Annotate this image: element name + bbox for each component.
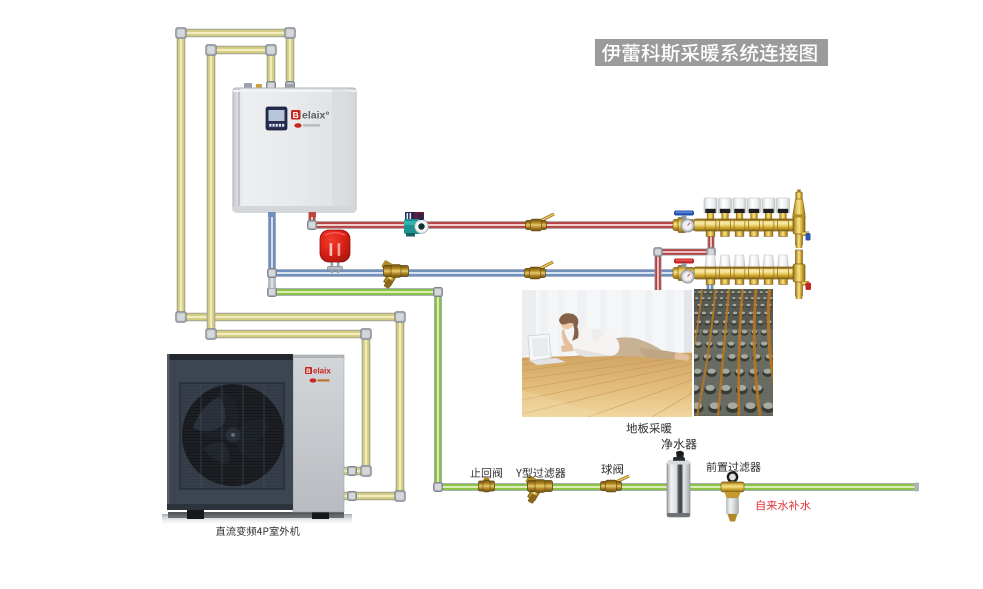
svg-text:B: B <box>306 368 311 375</box>
svg-text:elaix°: elaix° <box>302 110 330 122</box>
svg-text:B: B <box>293 110 299 120</box>
svg-text:elaix: elaix <box>313 367 331 376</box>
